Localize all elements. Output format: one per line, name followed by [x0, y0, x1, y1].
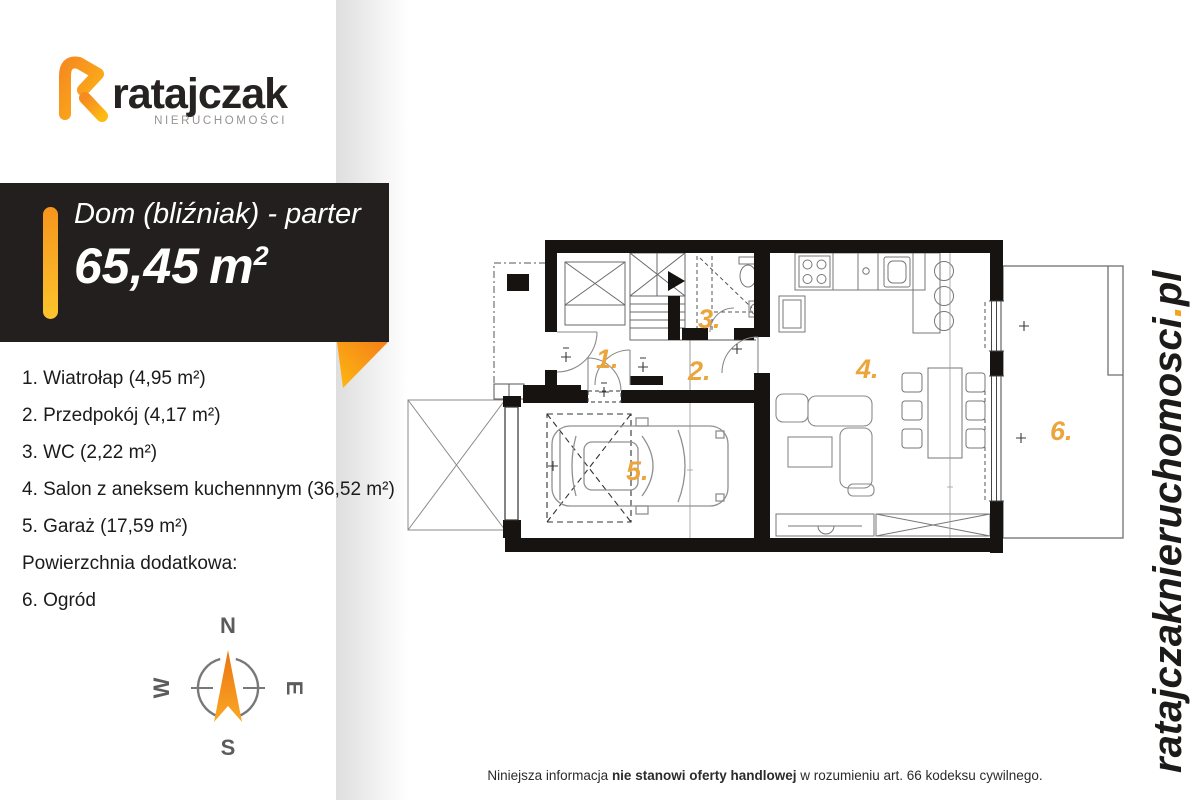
entry-door	[557, 332, 597, 372]
floor-plan: 1. 2. 3. 4. 5. 6.	[400, 225, 1140, 575]
title-banner: Dom (bliźniak) - parter 65,45m2	[0, 183, 389, 342]
car-mirror	[636, 418, 648, 426]
living-room-door	[722, 337, 758, 373]
wardrobe	[565, 262, 625, 325]
bar-counter	[913, 253, 940, 333]
ratajczak-r-ribbon-icon	[65, 63, 102, 116]
sofa	[808, 396, 872, 426]
toilet-bowl	[740, 265, 756, 287]
room-number-1: 1.	[596, 344, 619, 374]
flyer-page: { "colors": { "accent_orange": "#F0A132"…	[0, 0, 1200, 800]
accent-bar	[43, 207, 58, 319]
website-vertical-text: ratajczaknieruchomosci.pl	[1146, 263, 1191, 773]
room-number-4: 4.	[855, 354, 879, 384]
room-list-item: Powierzchnia dodatkowa:	[22, 545, 395, 582]
room-number-6: 6.	[1050, 416, 1073, 446]
dining-set	[902, 368, 985, 458]
room-list-item: 3. WC (2,22 m²)	[22, 434, 395, 471]
total-area-value: 65,45	[74, 238, 199, 294]
garden-outline	[1003, 266, 1123, 538]
room-list: 1. Wiatrołap (4,95 m²) 2. Przedpokój (4,…	[22, 360, 395, 619]
brand-name: ratajczak	[112, 70, 288, 118]
bar-stool	[935, 312, 954, 331]
brand-logo: ratajczak NIERUCHOMOŚCI	[52, 48, 302, 138]
website-dot: .	[1146, 306, 1190, 317]
kitchen-faucet-icon	[863, 268, 869, 274]
room-list-item: 2. Przedpokój (4,17 m²)	[22, 397, 395, 434]
driveway	[408, 400, 505, 530]
bar-stool	[935, 287, 954, 306]
dining-table	[928, 368, 962, 458]
tv-cabinet	[776, 514, 874, 536]
room-list-item: 1. Wiatrołap (4,95 m²)	[22, 360, 395, 397]
armchair	[776, 394, 808, 422]
crossed-strip	[876, 514, 990, 536]
website-name: ratajczaknieruchomosci	[1146, 317, 1190, 773]
compass-n: N	[220, 613, 236, 638]
compass-w: W	[153, 677, 174, 698]
room-number-3: 3.	[698, 304, 721, 334]
compass-e: E	[282, 681, 303, 696]
plan-title: Dom (bliźniak) - parter	[74, 198, 389, 231]
brand-tagline: NIERUCHOMOŚCI	[154, 114, 287, 127]
stove	[799, 256, 830, 287]
car-mirror	[636, 506, 648, 514]
disclaimer-suffix: w rozumieniu art. 66 kodeksu cywilnego.	[796, 768, 1042, 783]
room-list-item: 4. Salon z aneksem kuchennnym (36,52 m²)	[22, 471, 395, 508]
garage-door	[505, 407, 518, 520]
room-list-item: 5. Garaż (17,59 m²)	[22, 508, 395, 545]
stairs-direction-arrow-icon	[668, 271, 685, 291]
compass-s: S	[221, 735, 236, 760]
total-area-sup: 2	[254, 241, 269, 271]
bar-stool	[935, 262, 954, 281]
brand-logo-svg: ratajczak NIERUCHOMOŚCI	[52, 48, 302, 133]
coffee-table	[788, 437, 832, 467]
website-tld: pl	[1146, 271, 1190, 307]
total-area-unit: m	[209, 238, 253, 294]
compass-rose: N S W E	[153, 600, 303, 760]
sofa-set	[776, 394, 874, 496]
room-number-2: 2.	[687, 356, 711, 386]
total-area: 65,45m2	[74, 241, 389, 291]
room-number-5: 5.	[626, 456, 649, 486]
legal-disclaimer: Niniejsza informacja nie stanowi oferty …	[415, 768, 1115, 783]
disclaimer-prefix: Niniejsza informacja	[487, 768, 612, 783]
kitchen	[779, 253, 954, 333]
disclaimer-bold: nie stanowi oferty handlowej	[612, 768, 797, 783]
